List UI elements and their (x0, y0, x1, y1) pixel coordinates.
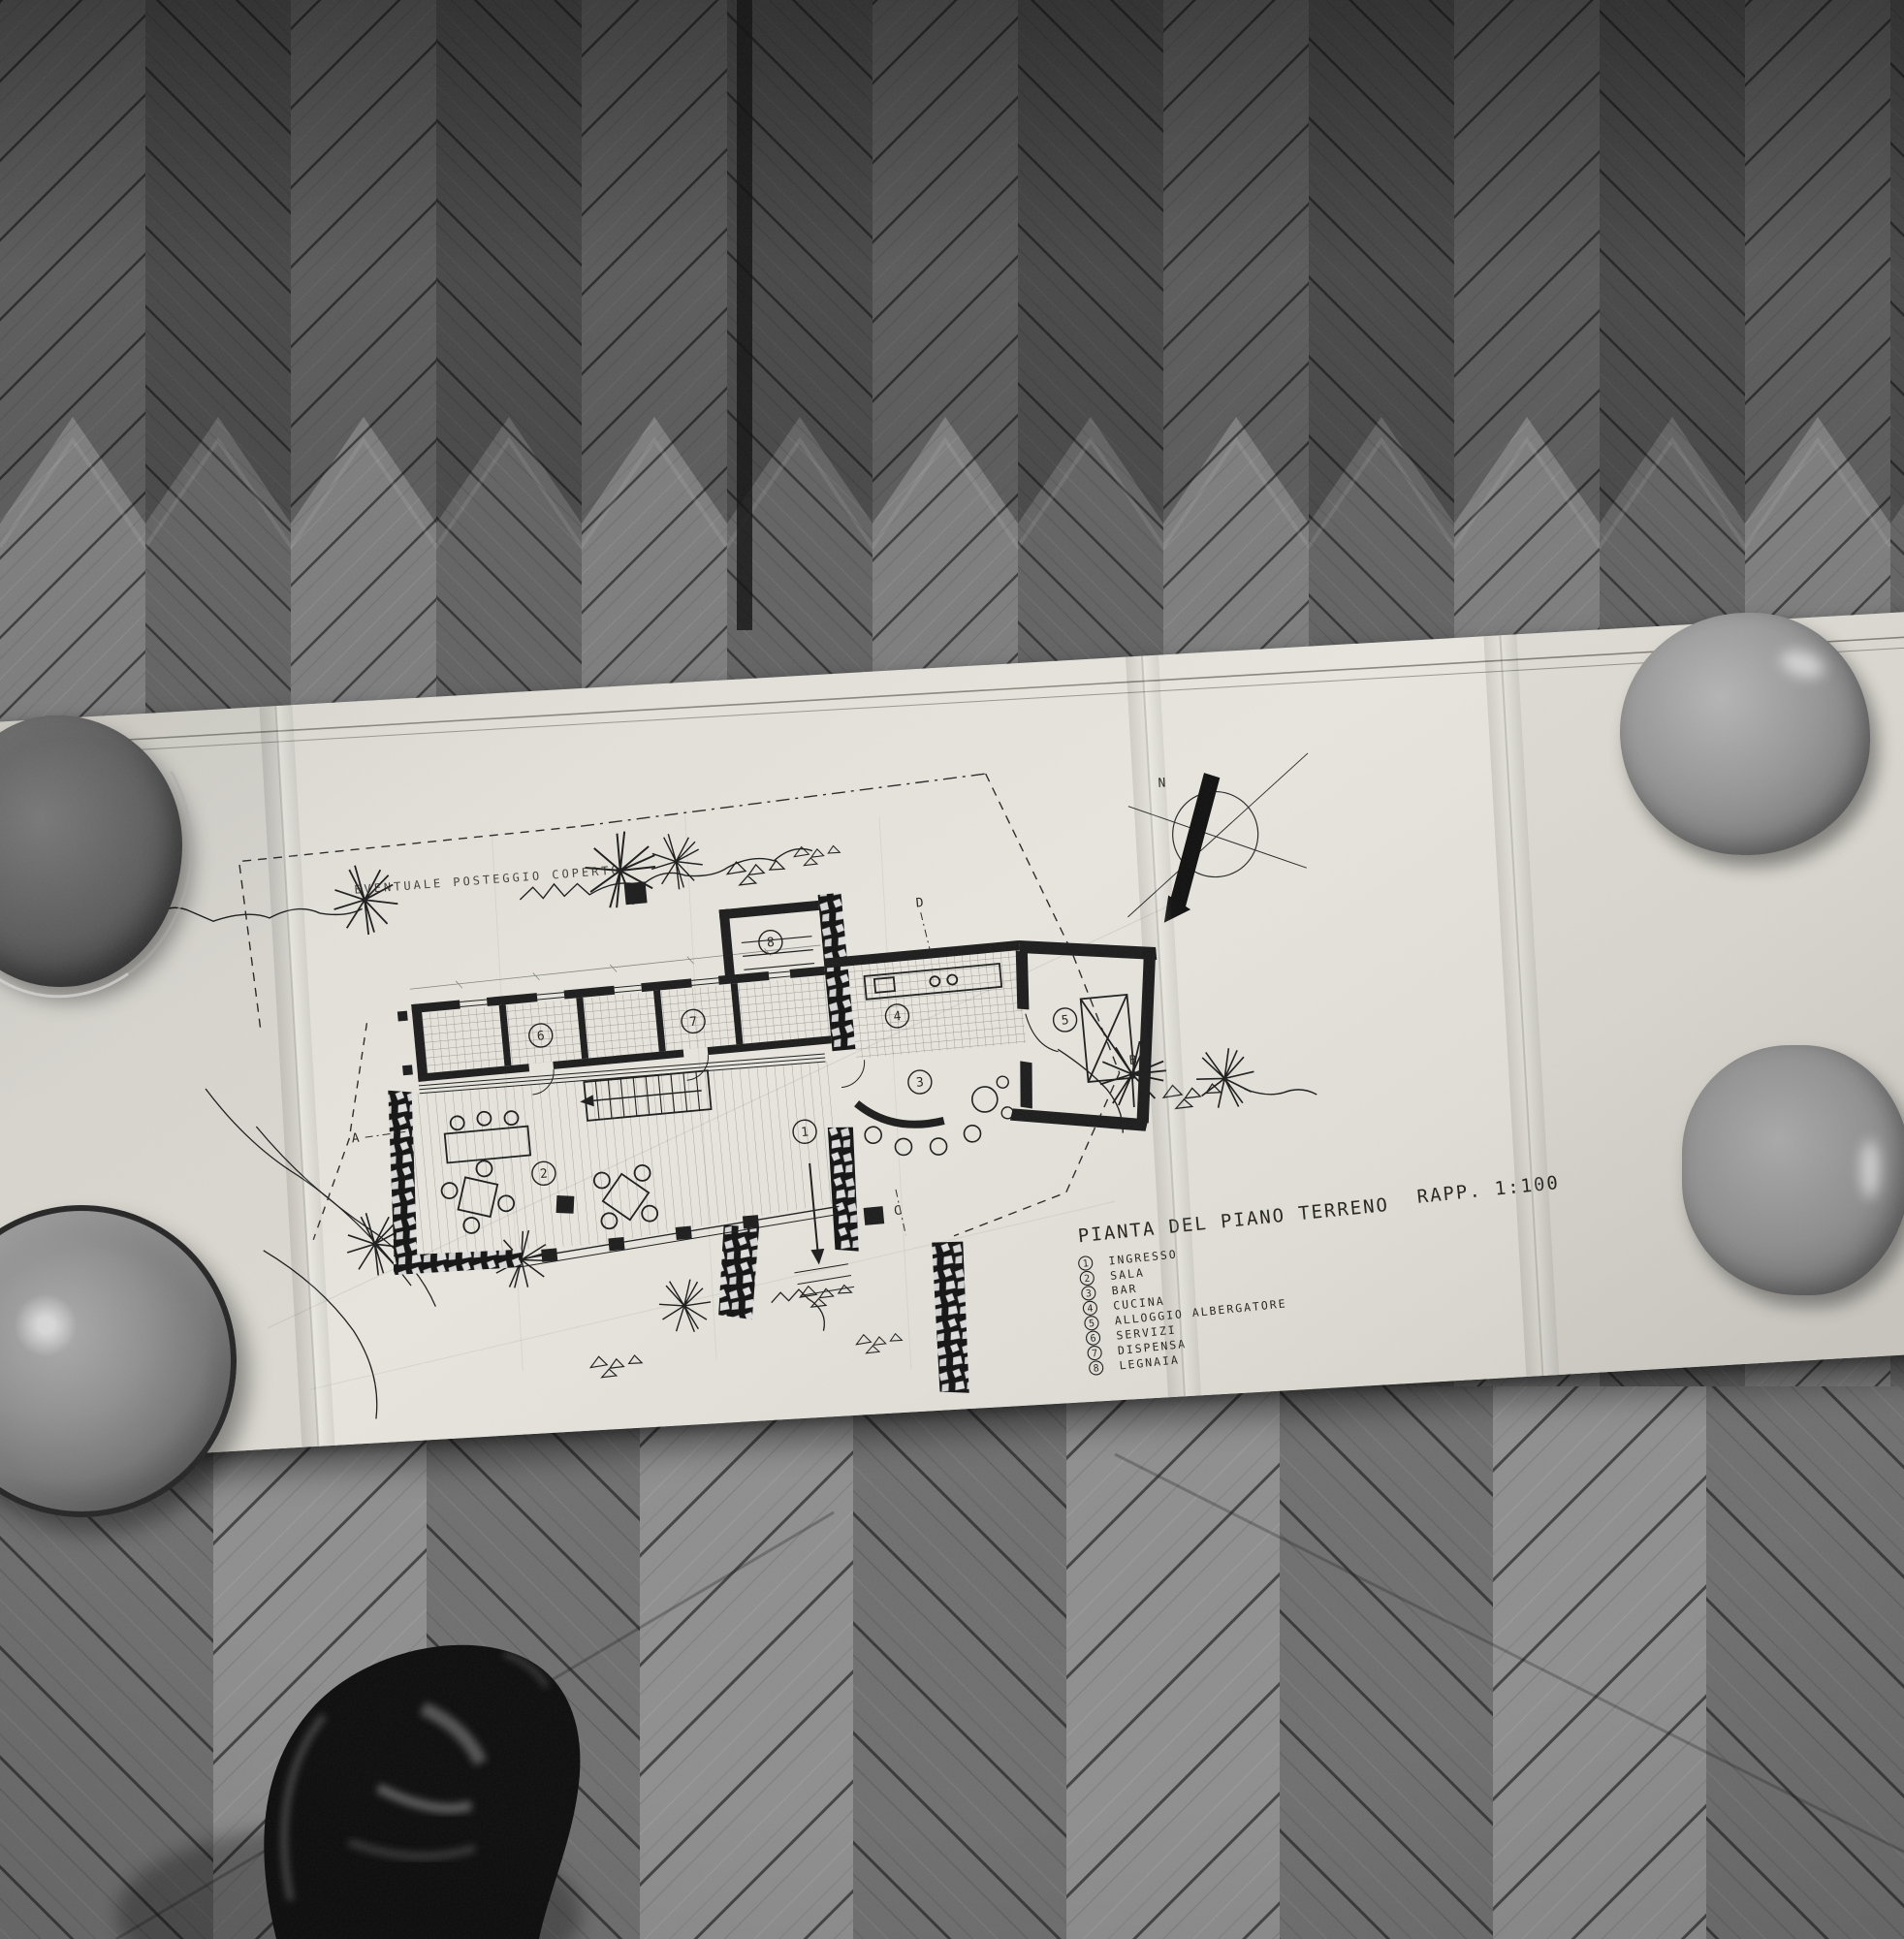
floor-top-shadow (0, 0, 1904, 271)
paperweight-pebble-bottom-right (1682, 1045, 1904, 1295)
plan-title: PIANTA DEL PIANO TERRENO (1077, 1194, 1390, 1247)
site-note: EVENTUALE POSTEGGIO COPERTO (354, 863, 621, 897)
title-block: PIANTA DEL PIANO TERRENO RAPP. 1:100 (1076, 1172, 1561, 1247)
room-8-shelves (742, 937, 814, 970)
hall-hearth (556, 1195, 575, 1214)
svg-text:7: 7 (1092, 1349, 1098, 1360)
building-plan: 1 2 3 4 5 6 7 8 A B C D (331, 835, 1195, 1447)
terrain-sketch-below-plan (800, 1281, 903, 1356)
room-number: 4 (893, 1009, 902, 1025)
svg-text:5: 5 (1089, 1319, 1095, 1330)
room-number: 6 (536, 1029, 545, 1044)
parquet-lower-field (0, 1386, 1904, 1939)
svg-text:2: 2 (1084, 1274, 1091, 1286)
room-number: 1 (801, 1125, 809, 1140)
architectural-drawing-sheet: EVENTUALE POSTEGGIO COPERTO N (0, 608, 1904, 1466)
room-number: 3 (915, 1075, 924, 1091)
detached-pier (624, 881, 648, 905)
paperweight-bowl-top-left (0, 715, 182, 987)
section-marker: D (915, 896, 924, 911)
pebble-gloss (1860, 1140, 1880, 1198)
svg-text:BAR: BAR (1111, 1282, 1138, 1298)
svg-text:4: 4 (1087, 1303, 1094, 1315)
room-number: 2 (539, 1166, 548, 1182)
svg-text:SALA: SALA (1109, 1265, 1145, 1283)
section-marker: A (351, 1131, 360, 1147)
svg-text:6: 6 (1090, 1333, 1096, 1345)
pebble-gloss (1777, 646, 1827, 683)
svg-text:8: 8 (1093, 1363, 1099, 1375)
photograph: EVENTUALE POSTEGGIO COPERTO N (0, 0, 1904, 1939)
room-number: 7 (689, 1015, 698, 1031)
wing-5-wardrobe (1025, 995, 1134, 1087)
svg-text:1: 1 (1082, 1258, 1089, 1270)
floor-gap-line (737, 0, 752, 630)
room-number: 5 (1061, 1013, 1069, 1029)
bar-area (855, 1075, 1016, 1161)
section-marker: B (1128, 1053, 1137, 1068)
paperweight-pebble-top-right (1620, 613, 1870, 855)
room-number: 8 (766, 936, 775, 951)
svg-text:3: 3 (1085, 1288, 1092, 1300)
